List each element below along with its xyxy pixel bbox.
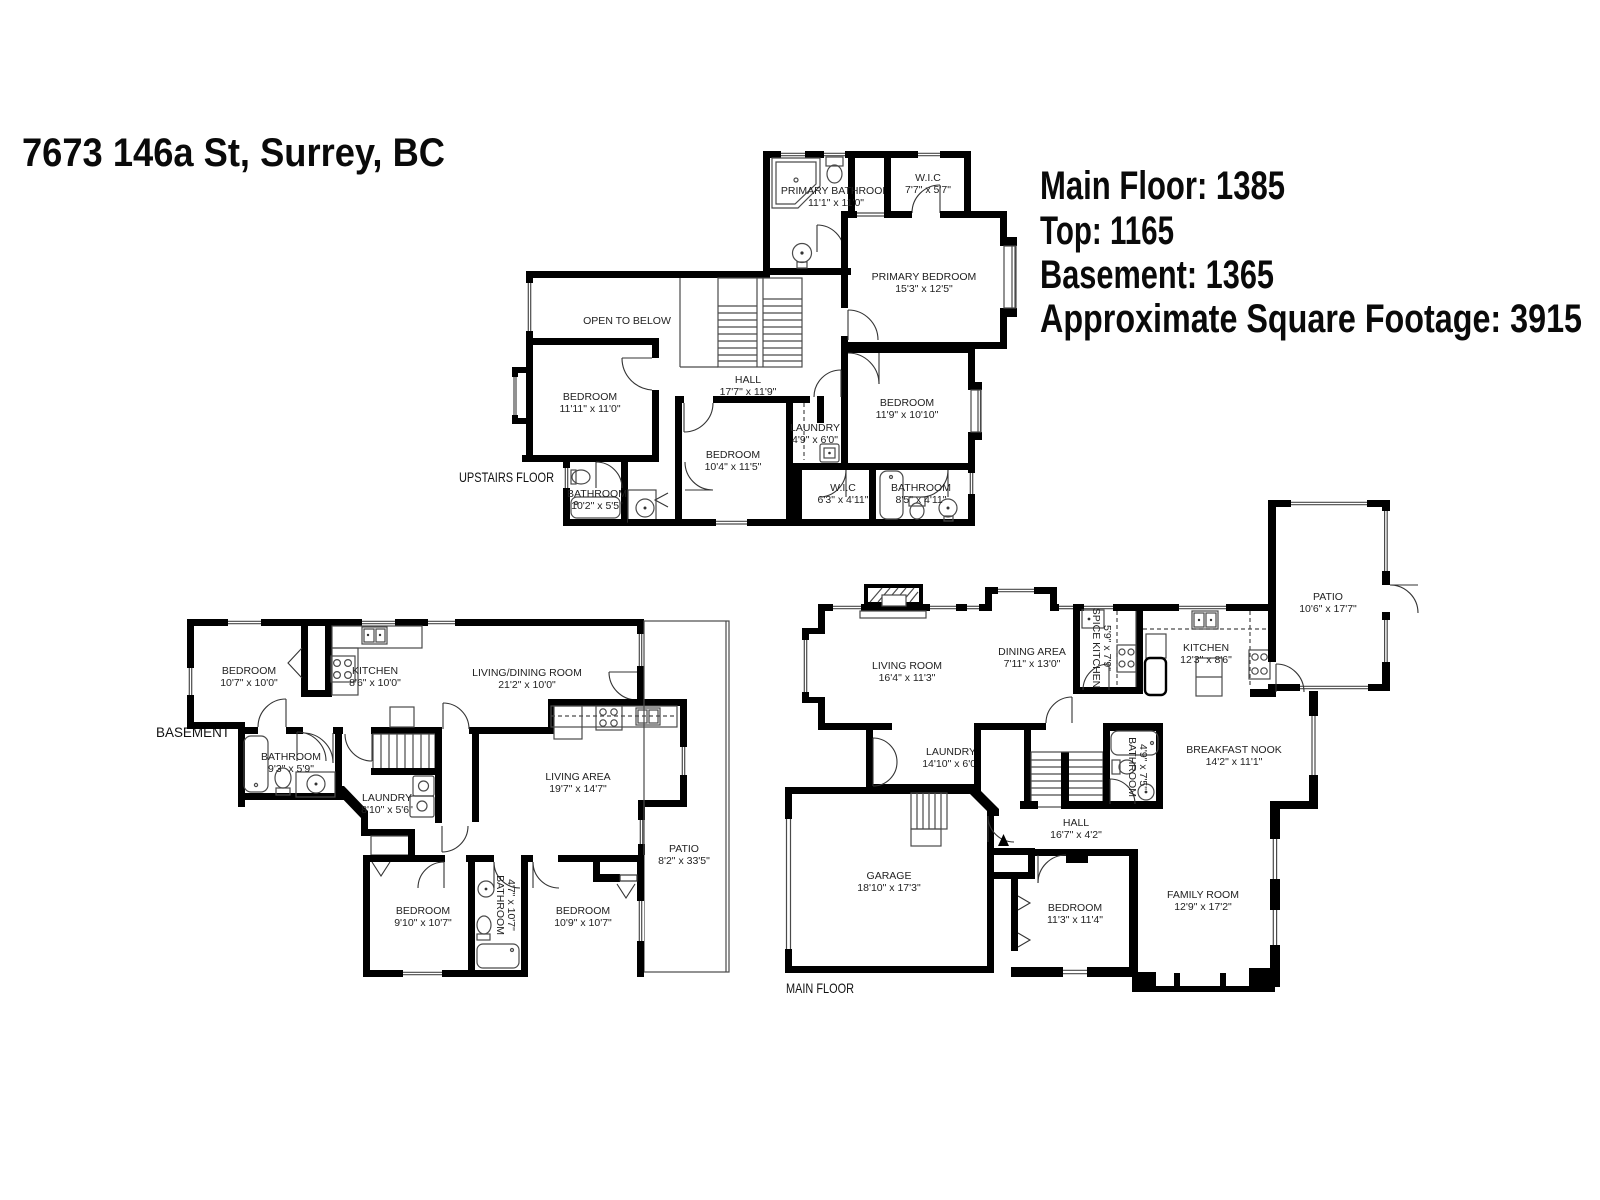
svg-text:4'9" x 6'0": 4'9" x 6'0" [792, 434, 838, 446]
svg-text:W.I.C: W.I.C [915, 172, 941, 184]
svg-text:BATHROOM: BATHROOM [891, 482, 951, 494]
svg-text:BEDROOM: BEDROOM [563, 391, 617, 403]
svg-text:Top: 1165: Top: 1165 [1040, 209, 1174, 253]
svg-text:10'4" x 11'5": 10'4" x 11'5" [705, 461, 762, 473]
svg-text:5'9" x 7'9": 5'9" x 7'9" [1101, 625, 1113, 671]
svg-text:11'9" x 10'10": 11'9" x 10'10" [876, 409, 939, 421]
svg-text:BEDROOM: BEDROOM [222, 665, 276, 677]
svg-text:Approximate Square Footage: 39: Approximate Square Footage: 3915 [1040, 297, 1582, 341]
svg-text:LAUNDRY: LAUNDRY [362, 792, 412, 804]
svg-text:PATIO: PATIO [1313, 591, 1343, 603]
svg-text:FAMILY ROOM: FAMILY ROOM [1167, 889, 1239, 901]
svg-text:15'3" x 12'5": 15'3" x 12'5" [895, 283, 953, 295]
svg-text:LAUNDRY: LAUNDRY [926, 746, 976, 758]
svg-text:14'2" x 11'1": 14'2" x 11'1" [1206, 756, 1263, 768]
svg-text:PATIO: PATIO [669, 843, 699, 855]
svg-text:12'9" x 17'2": 12'9" x 17'2" [1174, 901, 1232, 913]
svg-text:BEDROOM: BEDROOM [706, 449, 760, 461]
svg-text:4'9" x 7'5": 4'9" x 7'5" [1137, 744, 1149, 790]
svg-text:14'10" x 6'0": 14'10" x 6'0" [922, 758, 980, 770]
svg-text:PRIMARY BATHROOM: PRIMARY BATHROOM [781, 185, 891, 197]
svg-text:W.I.C: W.I.C [830, 482, 856, 494]
svg-text:21'2" x 10'0": 21'2" x 10'0" [498, 679, 556, 691]
svg-text:11'3" x 11'4": 11'3" x 11'4" [1047, 914, 1103, 926]
svg-text:BATHROOM: BATHROOM [494, 875, 506, 935]
svg-text:9'10" x 10'7": 9'10" x 10'7" [394, 917, 452, 929]
svg-text:4'7" x 10'7": 4'7" x 10'7" [505, 879, 517, 931]
svg-text:10'9" x 10'7": 10'9" x 10'7" [554, 917, 612, 929]
svg-text:BEDROOM: BEDROOM [880, 397, 934, 409]
svg-text:KITCHEN: KITCHEN [352, 665, 398, 677]
svg-text:Basement: 1365: Basement: 1365 [1040, 253, 1274, 297]
svg-text:8'2" x 33'5": 8'2" x 33'5" [658, 855, 710, 867]
svg-text:PRIMARY BEDROOM: PRIMARY BEDROOM [872, 271, 977, 283]
svg-text:18'10" x 17'3": 18'10" x 17'3" [857, 882, 921, 894]
svg-text:BATHROOM: BATHROOM [261, 751, 321, 763]
svg-text:16'7" x 4'2": 16'7" x 4'2" [1050, 829, 1102, 841]
svg-text:Main Floor: 1385: Main Floor: 1385 [1040, 164, 1285, 208]
svg-text:BEDROOM: BEDROOM [396, 905, 450, 917]
svg-text:10'7" x 10'0": 10'7" x 10'0" [220, 677, 278, 689]
svg-text:BATHROOM: BATHROOM [567, 488, 627, 500]
svg-text:6'3" x 4'11": 6'3" x 4'11" [818, 494, 869, 506]
svg-text:DINING AREA: DINING AREA [998, 646, 1066, 658]
svg-text:16'4" x 11'3": 16'4" x 11'3" [879, 672, 936, 684]
svg-text:9'3" x 5'9": 9'3" x 5'9" [268, 763, 314, 775]
svg-text:KITCHEN: KITCHEN [1183, 642, 1229, 654]
svg-text:BREAKFAST NOOK: BREAKFAST NOOK [1186, 744, 1282, 756]
svg-text:11'11" x 11'0": 11'11" x 11'0" [559, 403, 620, 415]
svg-text:BATHROOM: BATHROOM [1126, 737, 1138, 797]
svg-text:LIVING AREA: LIVING AREA [545, 771, 610, 783]
svg-text:8'5" x 4'11": 8'5" x 4'11" [896, 494, 947, 506]
svg-text:19'7" x 14'7": 19'7" x 14'7" [549, 783, 607, 795]
svg-text:10'6" x 17'7": 10'6" x 17'7" [1299, 603, 1357, 615]
svg-text:10'2" x 5'5": 10'2" x 5'5" [571, 500, 623, 512]
svg-text:BEDROOM: BEDROOM [556, 905, 610, 917]
svg-text:LIVING ROOM: LIVING ROOM [872, 660, 942, 672]
svg-text:7'11" x 13'0": 7'11" x 13'0" [1004, 658, 1061, 670]
svg-text:UPSTAIRS FLOOR: UPSTAIRS FLOOR [459, 469, 554, 485]
svg-text:8'10" x 5'6": 8'10" x 5'6" [361, 804, 413, 816]
svg-text:HALL: HALL [735, 374, 761, 386]
svg-text:OPEN TO BELOW: OPEN TO BELOW [583, 315, 671, 327]
svg-text:11'1" x 11'0": 11'1" x 11'0" [808, 197, 864, 209]
svg-text:7673 146a St, Surrey, BC: 7673 146a St, Surrey, BC [22, 131, 445, 175]
svg-text:GARAGE: GARAGE [867, 870, 912, 882]
svg-text:7'7" x 5'7": 7'7" x 5'7" [905, 184, 951, 196]
svg-text:LIVING/DINING ROOM: LIVING/DINING ROOM [472, 667, 582, 679]
svg-text:BEDROOM: BEDROOM [1048, 902, 1102, 914]
svg-text:8'6" x 10'0": 8'6" x 10'0" [349, 677, 401, 689]
svg-text:LAUNDRY: LAUNDRY [790, 422, 840, 434]
svg-text:SPICE KITCHEN: SPICE KITCHEN [1090, 608, 1102, 689]
svg-text:HALL: HALL [1063, 817, 1089, 829]
svg-text:MAIN FLOOR: MAIN FLOOR [786, 980, 854, 996]
svg-text:12'3" x 8'6": 12'3" x 8'6" [1180, 654, 1232, 666]
